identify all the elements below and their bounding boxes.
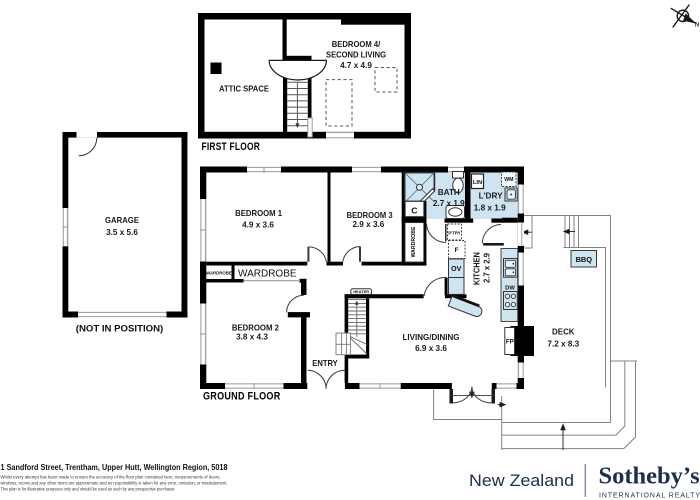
svg-text:1 Sandford Street, Trentham, U: 1 Sandford Street, Trentham, Upper Hutt,… — [1, 463, 228, 472]
svg-text:INTERNATIONAL REALTY: INTERNATIONAL REALTY — [599, 492, 700, 499]
svg-text:BBQ: BBQ — [576, 255, 593, 264]
svg-text:BEDROOM 4/: BEDROOM 4/ — [332, 39, 381, 49]
svg-text:ENTRY: ENTRY — [312, 358, 338, 368]
svg-text:BEDROOM 2: BEDROOM 2 — [232, 322, 279, 332]
svg-text:WARDROBE: WARDROBE — [238, 268, 297, 279]
svg-text:LIN: LIN — [473, 180, 482, 186]
svg-text:FIRST FLOOR: FIRST FLOOR — [202, 141, 261, 153]
svg-text:WARDROBE: WARDROBE — [411, 226, 417, 257]
svg-text:1.8 x 1.9: 1.8 x 1.9 — [474, 203, 506, 212]
svg-text:3.5 x 5.6: 3.5 x 5.6 — [106, 228, 138, 237]
svg-text:KITCHEN: KITCHEN — [472, 252, 482, 285]
svg-text:Whilst every attempt has been: Whilst every attempt has been made to en… — [1, 475, 221, 480]
svg-text:(NOT IN POSITION): (NOT IN POSITION) — [76, 324, 164, 335]
svg-text:2.7 x 1.9: 2.7 x 1.9 — [433, 199, 465, 208]
svg-text:2.9 x 3.6: 2.9 x 3.6 — [352, 220, 384, 229]
svg-text:New Zealand: New Zealand — [469, 472, 574, 490]
svg-text:7.2 x 8.3: 7.2 x 8.3 — [547, 340, 579, 349]
svg-text:P'TRY: P'TRY — [448, 230, 460, 235]
svg-text:windows, rooms and any other i: windows, rooms and any other items are a… — [1, 481, 228, 486]
svg-text:WM: WM — [504, 177, 513, 183]
svg-text:BEDROOM 1: BEDROOM 1 — [235, 208, 282, 218]
svg-text:ATTIC SPACE: ATTIC SPACE — [219, 84, 269, 94]
svg-text:Sotheby’s: Sotheby’s — [599, 463, 700, 490]
svg-text:GARAGE: GARAGE — [105, 215, 139, 225]
svg-text:4.7 x 4.9: 4.7 x 4.9 — [340, 61, 372, 70]
svg-text:BEDROOM 3: BEDROOM 3 — [347, 210, 393, 220]
svg-text:F: F — [455, 247, 459, 254]
svg-text:LIVING/DINING: LIVING/DINING — [403, 332, 460, 342]
svg-text:N: N — [695, 22, 700, 29]
svg-text:HEATER: HEATER — [353, 289, 369, 294]
svg-text:GROUND FLOOR: GROUND FLOOR — [203, 391, 281, 403]
svg-text:WARDROBE: WARDROBE — [206, 271, 232, 276]
svg-text:6.9 x 3.6: 6.9 x 3.6 — [415, 344, 447, 353]
svg-text:This plan is for illustrative: This plan is for illustrative purposes o… — [1, 487, 176, 492]
svg-text:2.7 x 2.9: 2.7 x 2.9 — [482, 253, 491, 283]
svg-text:OV: OV — [451, 266, 461, 273]
svg-text:DW: DW — [505, 285, 515, 291]
svg-text:DECK: DECK — [552, 326, 575, 336]
svg-text:BATH: BATH — [438, 187, 460, 197]
svg-text:FP: FP — [506, 339, 514, 346]
svg-text:SECOND LIVING: SECOND LIVING — [326, 50, 386, 60]
svg-text:C: C — [411, 206, 417, 216]
svg-text:4.9 x 3.6: 4.9 x 3.6 — [242, 221, 274, 230]
svg-text:3.8 x 4.3: 3.8 x 4.3 — [236, 333, 268, 342]
svg-text:L'DRY: L'DRY — [479, 191, 503, 201]
